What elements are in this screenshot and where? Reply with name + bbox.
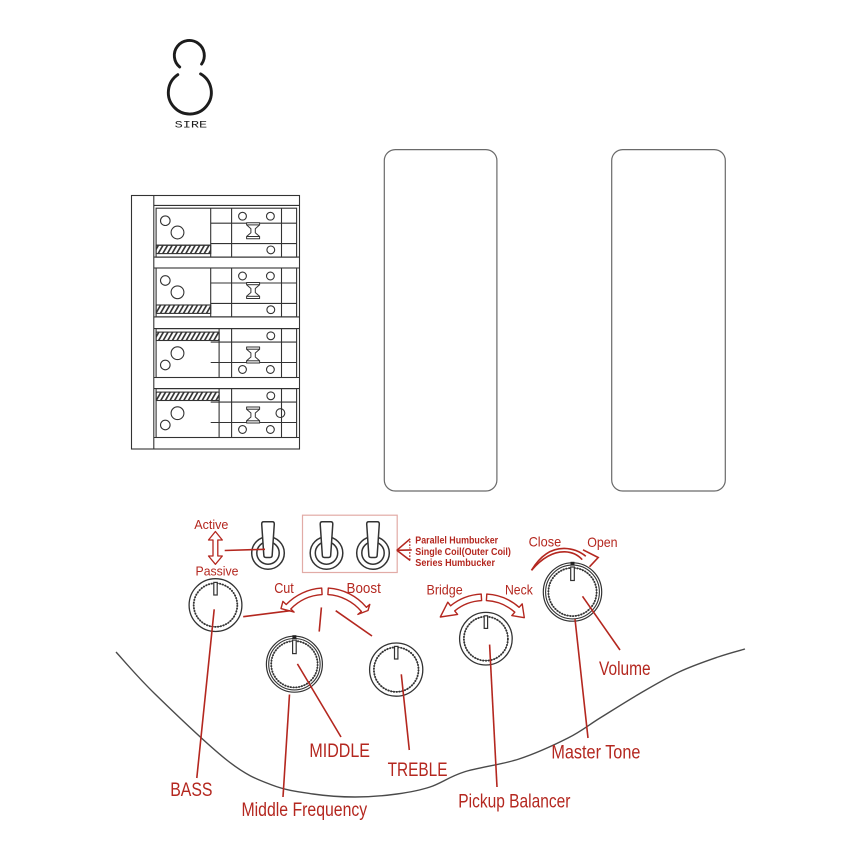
svg-text:Bridge: Bridge	[427, 583, 463, 598]
svg-text:Neck: Neck	[505, 583, 533, 598]
svg-text:Pickup Balancer: Pickup Balancer	[458, 791, 570, 813]
svg-text:BASS: BASS	[170, 779, 212, 801]
svg-text:Master Tone: Master Tone	[551, 742, 640, 764]
svg-text:Boost: Boost	[347, 580, 382, 597]
svg-text:Active: Active	[194, 517, 228, 532]
svg-text:SIRE: SIRE	[175, 120, 208, 132]
svg-text:Parallel Humbucker: Parallel Humbucker	[415, 536, 498, 547]
svg-text:Cut: Cut	[274, 580, 294, 597]
svg-text:Open: Open	[587, 534, 617, 550]
svg-text:Single Coil(Outer Coil): Single Coil(Outer Coil)	[415, 547, 511, 558]
svg-text:Close: Close	[529, 533, 562, 549]
svg-text:MIDDLE: MIDDLE	[309, 740, 370, 762]
svg-text:Series Humbucker: Series Humbucker	[415, 558, 495, 569]
svg-text:TREBLE: TREBLE	[388, 759, 448, 781]
svg-text:Middle Frequency: Middle Frequency	[242, 799, 368, 821]
svg-text:Passive: Passive	[196, 564, 239, 579]
svg-text:Volume: Volume	[599, 658, 651, 680]
